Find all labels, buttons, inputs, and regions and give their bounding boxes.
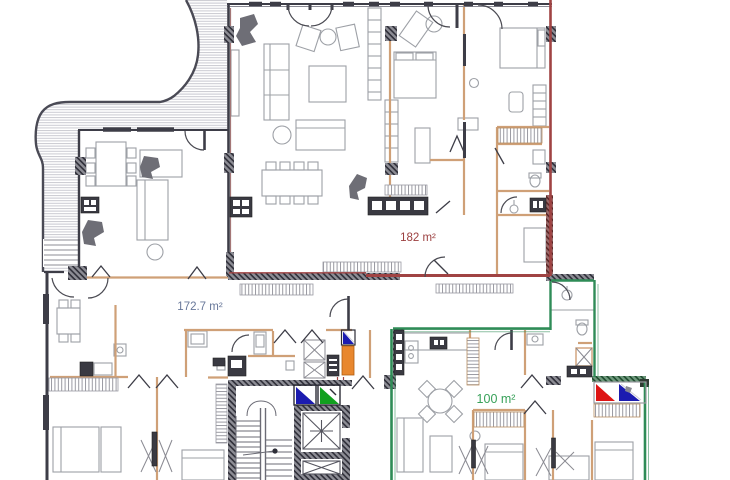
svg-text:182 m²: 182 m²	[400, 232, 436, 244]
svg-text:100 m²: 100 m²	[477, 392, 516, 406]
svg-text:172.7 m²: 172.7 m²	[177, 301, 223, 313]
